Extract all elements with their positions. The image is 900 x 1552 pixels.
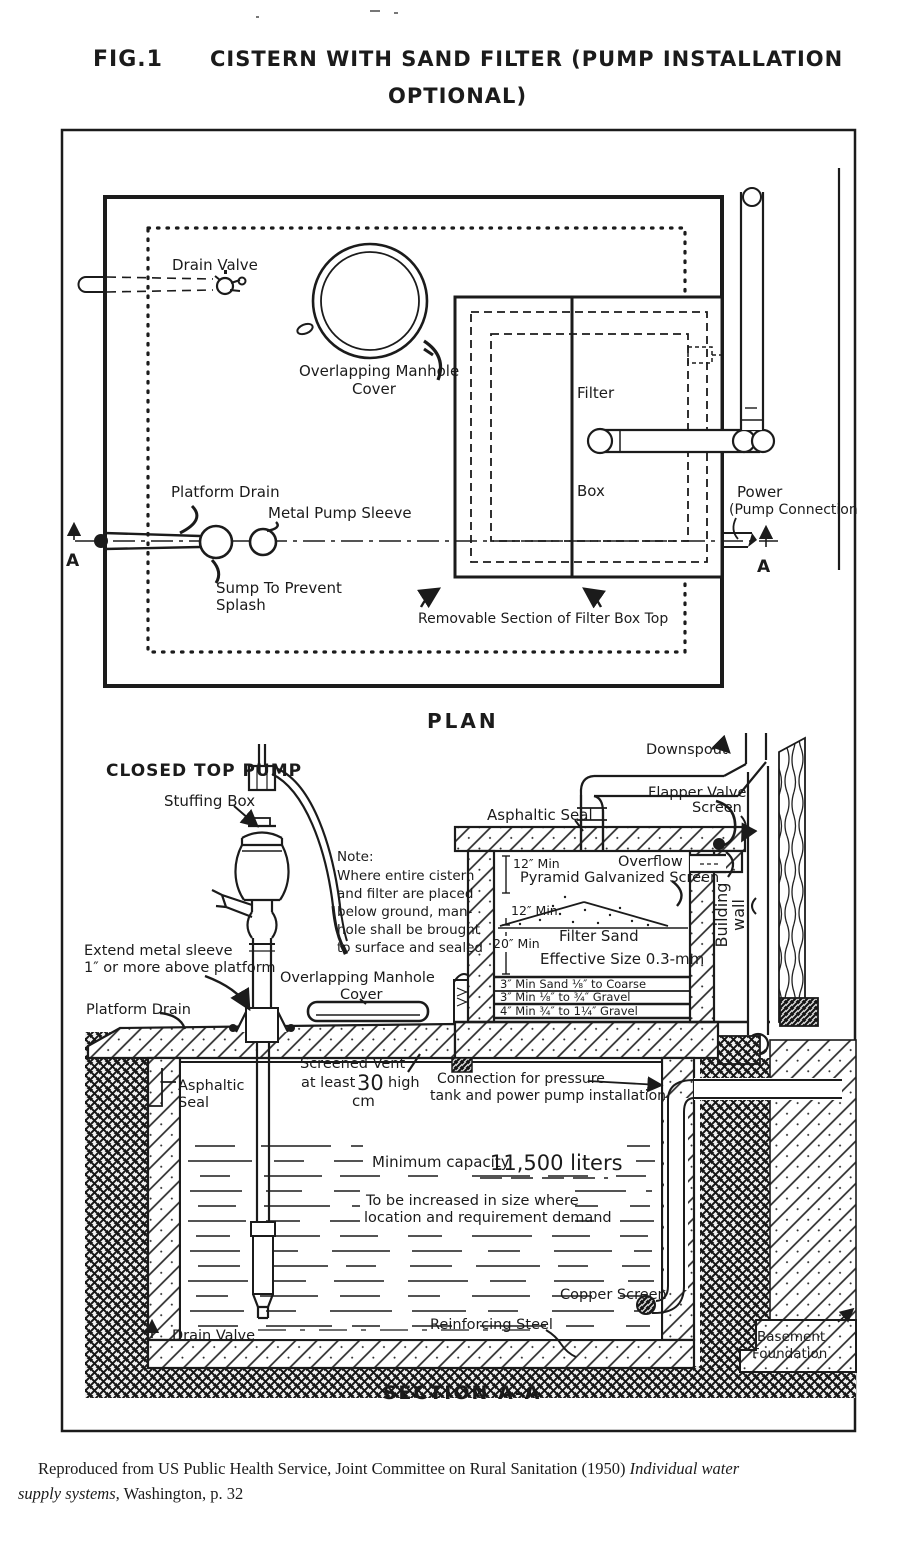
plan-filter-pipe: [588, 429, 774, 453]
earth-under-wall: [718, 1036, 760, 1064]
vent-label1: Screened Vent: [300, 1056, 405, 1072]
note-block: Note: Where entire cistern and filter ar…: [337, 849, 483, 956]
citation-line1: Reproduced from US Public Health Service…: [38, 1459, 740, 1478]
vent-screen-below-slab: [452, 1058, 472, 1072]
extend-sleeve-label1: Extend metal sleeve: [84, 943, 233, 959]
plan-sump-label1: Sump To Prevent: [216, 579, 342, 597]
figure-title-line2: OPTIONAL): [388, 84, 527, 108]
plan-pump-sleeve-label: Metal Pump Sleeve: [268, 504, 412, 522]
citation-line2: supply systems, Washington, p. 32: [18, 1484, 243, 1503]
wall-sill-block: [780, 998, 818, 1026]
note-line6: to surface and sealed: [337, 940, 483, 956]
layer3-label: 4″ Min ¾″ to 1¼″ Gravel: [500, 1004, 638, 1018]
effective-size-label: Effective Size 0.3-mm: [540, 950, 704, 968]
plan-marker-a-left: A: [66, 551, 80, 571]
asphaltic-seal-top-label: Asphaltic Seal: [487, 806, 593, 824]
figure-label: FIG.1: [93, 47, 163, 72]
extend-sleeve-label2: 1″ or more above platform: [84, 960, 276, 976]
pump-foot-valve: [251, 1222, 275, 1236]
plan-marker-a-right: A: [757, 557, 771, 577]
plan-view: [74, 168, 839, 686]
asphaltic-label1: Asphaltic: [178, 1078, 244, 1094]
plan-pump-sleeve: [250, 529, 276, 555]
plan-platform-drain-label: Platform Drain: [171, 483, 280, 501]
plan-power-label1: Power: [737, 483, 783, 501]
basement-label2: Foundation: [752, 1346, 827, 1362]
plan-power-label2: (Pump Connection: [729, 502, 858, 518]
figure-drawing: FIG.1 CISTERN WITH SAND FILTER (PUMP INS…: [0, 0, 900, 1552]
scan-noise: [256, 10, 398, 18]
note-line4: below ground, man-: [337, 904, 473, 920]
filter-sand-label: Filter Sand: [559, 927, 639, 945]
section-cistern-wall-left: [148, 1058, 180, 1340]
increase-label1: To be increased in size where: [365, 1193, 579, 1209]
citation-line1-italic: Individual water: [629, 1459, 740, 1478]
plan-manhole-label1: Overlapping Manhole: [299, 362, 459, 380]
layer2-label: 3″ Min ⅛″ to ¾″ Gravel: [500, 990, 631, 1004]
scanned-figure-page: FIG.1 CISTERN WITH SAND FILTER (PUMP INS…: [0, 0, 900, 1552]
section-cistern-floor: [148, 1340, 694, 1368]
plan-filter-label: Filter: [577, 384, 615, 402]
note-line2: Where entire cistern: [337, 868, 475, 884]
reinforcing-steel-label: Reinforcing Steel: [430, 1317, 553, 1333]
section-drain-valve-label: Drain Valve: [172, 1328, 255, 1344]
copper-screen-label: Copper Screen: [560, 1287, 667, 1303]
figure-title-block: FIG.1 CISTERN WITH SAND FILTER (PUMP INS…: [93, 47, 843, 108]
filter-box-top-slab: [455, 827, 745, 851]
capacity-value: 11,500 liters: [490, 1151, 623, 1175]
plan-power-connection: [722, 518, 757, 547]
connection-label2: tank and power pump installation: [430, 1088, 666, 1104]
basement-label1: Basement: [757, 1329, 825, 1345]
plan-sump-label2: Splash: [216, 596, 266, 614]
dim-20-label: 20″ Min: [493, 936, 540, 951]
section-earth-left: [85, 1032, 150, 1368]
plan-caption: PLAN: [427, 709, 499, 733]
overflow-label: Overflow: [618, 854, 683, 870]
note-line1: Note:: [337, 849, 374, 865]
stuffing-box-label: Stuffing Box: [164, 792, 255, 810]
pump-stuffing-box-part: [254, 818, 270, 826]
extend-sleeve-leader: [205, 976, 248, 1007]
section-manhole-label2: Cover: [340, 987, 382, 1003]
section-caption: SECTION A-A: [383, 1382, 542, 1404]
asphaltic-label2: Seal: [178, 1095, 209, 1111]
pump-sleeve-section: [246, 1008, 278, 1042]
closed-top-pump-label: CLOSED TOP PUMP: [106, 761, 302, 781]
section-platform-drain-label: Platform Drain: [86, 1002, 191, 1018]
downspout-label: Downspout: [646, 742, 728, 758]
plan-drain-valve-label: Drain Valve: [172, 256, 258, 274]
note-line3: and filter are placed: [337, 886, 473, 902]
plan-removable-label: Removable Section of Filter Box Top: [418, 611, 668, 627]
plan-manhole-label2: Cover: [352, 380, 397, 398]
citation-line2-italic: supply systems,: [18, 1484, 120, 1503]
section-manhole-label1: Overlapping Manhole: [280, 970, 435, 986]
vent-label2b: high: [388, 1075, 420, 1091]
note-line5: hole shall be brought: [337, 922, 480, 938]
citation-line2-normal: Washington, p. 32: [120, 1484, 244, 1503]
figure-title-line1: CISTERN WITH SAND FILTER (PUMP INSTALLAT…: [210, 47, 843, 71]
plan-downspout-riser: [741, 188, 763, 430]
pump-spout: [212, 890, 252, 917]
wood-siding: [779, 738, 805, 1022]
citation-line1-normal: Reproduced from US Public Health Service…: [38, 1459, 630, 1478]
layer1-label: 3″ Min Sand ⅛″ to Coarse: [500, 977, 646, 991]
building-wall-label2: wall: [729, 899, 748, 931]
dim-12-lower-label: 12″ Min: [511, 903, 558, 918]
connection-label1: Connection for pressure: [437, 1071, 605, 1087]
pyramid-screen-label: Pyramid Galvanized Screen: [520, 870, 719, 886]
flapper-valve-label1: Flapper Valve: [648, 785, 746, 801]
plan-sump: [200, 526, 232, 558]
section-view: [85, 733, 856, 1398]
dim-12-upper-label: 12″ Min: [513, 856, 560, 871]
section-platform-slab-right: [455, 1022, 718, 1058]
plan-box-label: Box: [577, 482, 605, 500]
citation: Reproduced from US Public Health Service…: [18, 1459, 740, 1503]
dimension-lines: [502, 856, 510, 974]
increase-label2: location and requirement demand: [364, 1210, 612, 1226]
flapper-valve-label2: Screen: [692, 800, 742, 816]
vent-unit: cm: [352, 1092, 375, 1110]
vent-label2a: at least: [301, 1075, 356, 1091]
